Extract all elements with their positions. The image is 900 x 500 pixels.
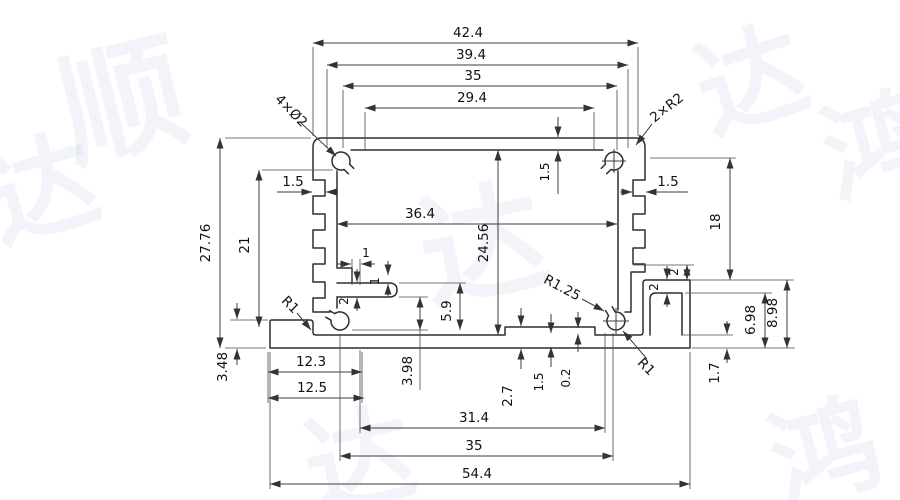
dim-18: 18 [708, 158, 730, 280]
dim-text: 6.98 [743, 305, 759, 335]
callout-r1-right: R1 [623, 331, 658, 379]
dim-27-76: 27.76 [198, 138, 220, 348]
dim-3-98: 3.98 [400, 297, 420, 390]
dim-2-left-rail: 2 [337, 269, 357, 311]
callout-text: R1 [278, 293, 302, 317]
dim-2-right-upper: 2 [667, 265, 687, 280]
dim-1-a: 1 [337, 246, 375, 264]
dim-text: 5.9 [439, 300, 455, 321]
dim-1-5-bottom: 1.5 [532, 314, 551, 392]
callout-r1-left: R1 [278, 293, 311, 330]
dim-text: 2 [667, 268, 681, 276]
watermark-char: 鸿 [757, 380, 894, 500]
screw-boss-top-right [601, 152, 623, 174]
dim-text: 2 [337, 297, 351, 305]
dim-text: 27.76 [198, 224, 214, 263]
dim-0-2: 0.2 [559, 312, 578, 388]
dim-text: 42.4 [453, 25, 483, 41]
dim-text: 54.4 [462, 466, 492, 482]
callout-text: 4×Ø2 [272, 92, 311, 131]
screw-boss-bottom-right [606, 307, 625, 330]
dim-text: 3.98 [400, 356, 416, 386]
dim-text: 0.2 [559, 368, 573, 387]
dim-2-7: 2.7 [500, 308, 521, 407]
watermark-char: 达 [681, 6, 822, 158]
dim-1-5-plate: 1.5 [538, 117, 558, 194]
callout-text: R1 [634, 355, 658, 379]
dim-1-5-left: 1.5 [277, 174, 338, 192]
dim-text: 36.4 [405, 206, 435, 222]
dim-text: 3.48 [215, 352, 231, 382]
dim-text: 8.98 [765, 298, 781, 328]
dim-text: 12.5 [297, 380, 327, 396]
callout-corner-radius: 2×R2 [636, 90, 687, 145]
dim-text: 1.7 [707, 362, 723, 383]
dim-12-3: 12.3 [268, 354, 362, 372]
screw-boss-bottom-left [326, 311, 349, 330]
callout-holes: 4×Ø2 [272, 92, 336, 156]
dim-text: 31.4 [459, 410, 489, 426]
dim-42-4: 42.4 [313, 25, 638, 43]
cad-drawing-canvas: 顺 达 达 达 鸿 达 鸿 [0, 0, 900, 500]
dim-21: 21 [237, 170, 259, 327]
dim-3-48: 3.48 [215, 303, 237, 382]
dim-text: 1.5 [538, 162, 552, 181]
dim-text: 35 [465, 438, 482, 454]
dim-text: 29.4 [457, 90, 487, 106]
dim-8-98: 8.98 [765, 280, 787, 348]
center-mark-top-right [602, 149, 626, 173]
dim-text: 39.4 [456, 47, 486, 63]
dim-text: 12.3 [296, 354, 326, 370]
watermark: 顺 达 达 达 鸿 达 鸿 [0, 6, 900, 500]
profile-drawing: 顺 达 达 达 鸿 达 鸿 [0, 0, 900, 500]
dim-12-5: 12.5 [268, 380, 364, 398]
dim-text: 2 [647, 283, 661, 291]
dim-1-7: 1.7 [707, 321, 727, 384]
dim-text: 18 [708, 213, 724, 230]
dim-text: 1.5 [532, 372, 546, 391]
dim-text: 35 [464, 68, 481, 84]
dim-6-98: 6.98 [743, 293, 765, 348]
dim-35-top: 35 [343, 68, 617, 86]
base-right-pocket [650, 293, 682, 335]
dim-text: 1 [368, 277, 382, 285]
dim-text: 2.7 [500, 385, 516, 406]
watermark-char: 鸿 [810, 73, 900, 222]
dim-text: 1.5 [282, 174, 303, 190]
dim-text: 1.5 [657, 174, 678, 190]
dim-1-5-right: 1.5 [620, 174, 688, 192]
dim-text: 1 [362, 246, 370, 260]
dim-1-b: 1 [368, 261, 388, 297]
dim-text: 24.56 [476, 224, 492, 263]
dim-text: 21 [237, 236, 253, 253]
dim-39-4: 39.4 [327, 47, 628, 65]
callout-text: 2×R2 [647, 90, 687, 126]
dim-29-4: 29.4 [365, 90, 594, 108]
cover-left-inner-wall [337, 171, 352, 308]
